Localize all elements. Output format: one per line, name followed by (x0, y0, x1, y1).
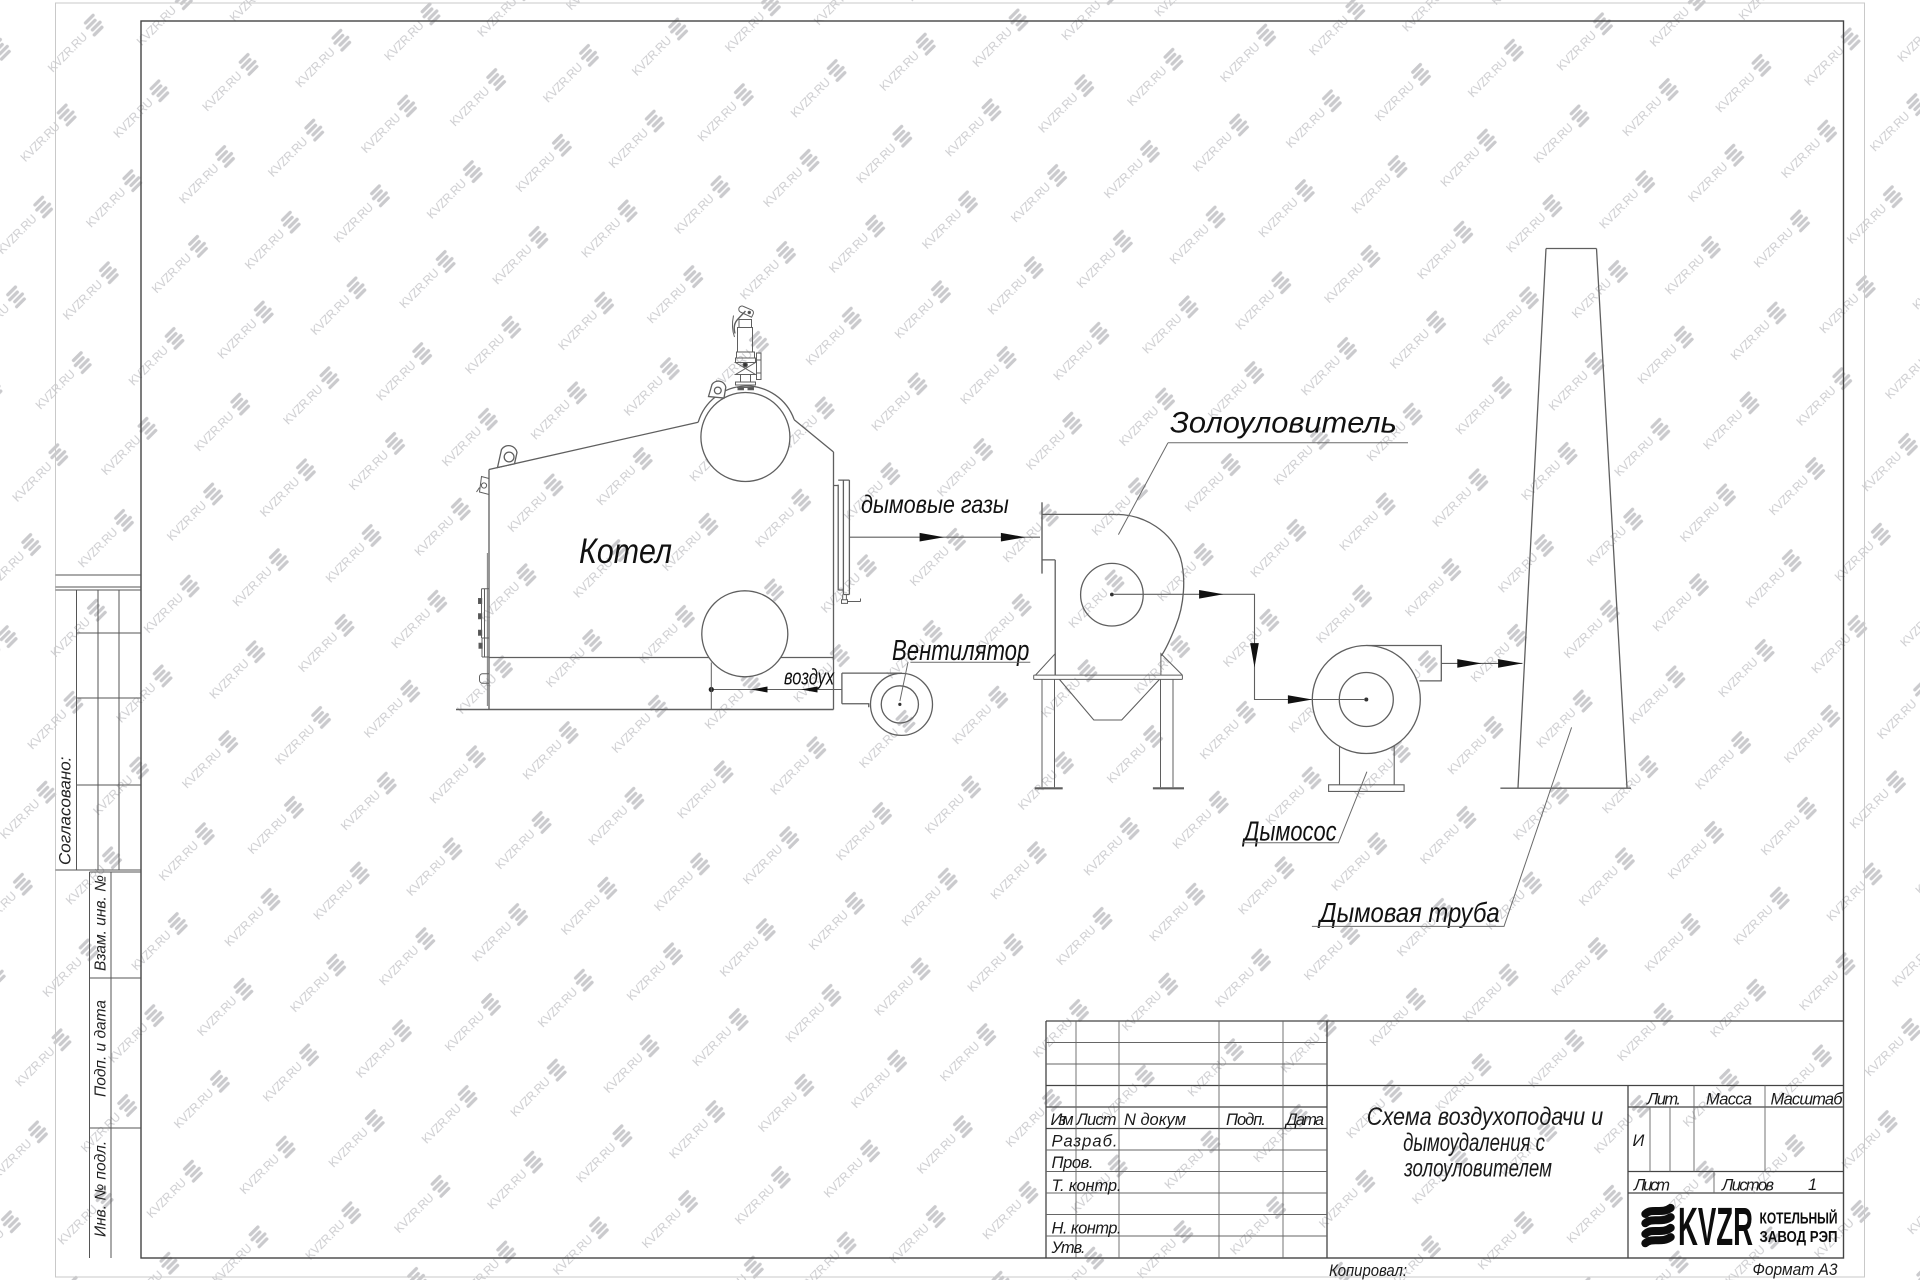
svg-text:Дата: Дата (1284, 1111, 1324, 1129)
svg-text:КОТЕЛЬНЫЙ: КОТЕЛЬНЫЙ (1760, 1210, 1838, 1228)
svg-text:Пров.: Пров. (1052, 1154, 1094, 1172)
svg-text:1: 1 (1808, 1176, 1817, 1194)
svg-text:Золоуловитель: Золоуловитель (1170, 406, 1397, 440)
svg-text:Разраб.: Разраб. (1052, 1133, 1118, 1151)
svg-text:N докум: N докум (1124, 1111, 1186, 1129)
svg-text:KVZR: KVZR (1678, 1197, 1753, 1257)
svg-text:Лист: Лист (1076, 1111, 1117, 1129)
svg-text:Т. контр.: Т. контр. (1052, 1177, 1122, 1195)
svg-text:золоуловителем: золоуловителем (1403, 1154, 1552, 1182)
svg-text:И: И (1633, 1132, 1645, 1150)
svg-text:Лит.: Лит. (1646, 1091, 1681, 1109)
svg-text:дымоудаления с: дымоудаления с (1403, 1128, 1545, 1156)
svg-text:Утв.: Утв. (1051, 1239, 1086, 1257)
svg-text:Изм: Изм (1051, 1111, 1074, 1129)
svg-text:Подп. и дата: Подп. и дата (93, 1000, 110, 1097)
svg-text:дымовые газы: дымовые газы (861, 491, 1009, 519)
svg-text:Подп.: Подп. (1226, 1111, 1266, 1129)
svg-text:воздух: воздух (784, 665, 835, 690)
svg-text:Н. контр.: Н. контр. (1052, 1220, 1122, 1238)
svg-text:Масса: Масса (1706, 1091, 1752, 1109)
svg-text:Схема воздухоподачи и: Схема воздухоподачи и (1367, 1103, 1603, 1131)
svg-text:Лист: Лист (1633, 1177, 1670, 1195)
svg-text:Листов: Листов (1721, 1177, 1774, 1195)
svg-text:Копировал:: Копировал: (1329, 1261, 1407, 1280)
svg-text:Взам. инв. №: Взам. инв. № (93, 875, 110, 971)
svg-text:Формат А3: Формат А3 (1753, 1260, 1838, 1279)
svg-text:Инв. № подл.: Инв. № подл. (93, 1141, 110, 1237)
svg-text:ЗАВОД РЭП: ЗАВОД РЭП (1760, 1229, 1838, 1246)
svg-text:Согласовано:: Согласовано: (56, 756, 75, 865)
svg-text:Дымовая труба: Дымовая труба (1317, 896, 1500, 928)
svg-text:Котел: Котел (579, 531, 672, 571)
svg-text:Масштаб: Масштаб (1771, 1091, 1844, 1109)
